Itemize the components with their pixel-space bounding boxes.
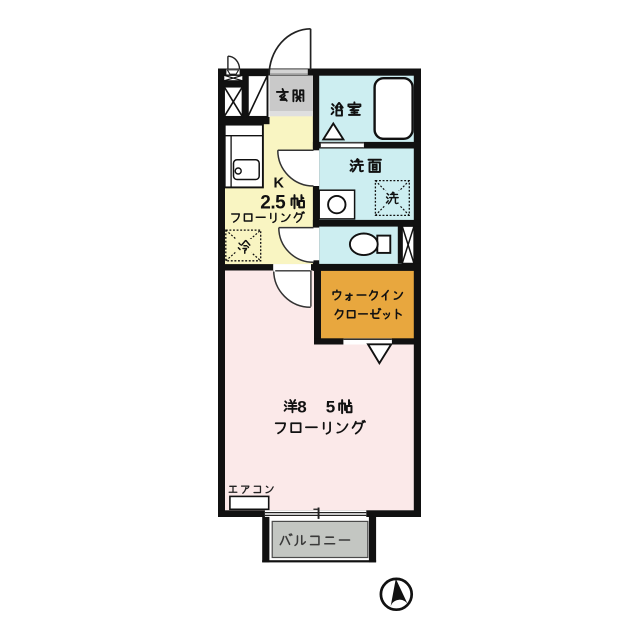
svg-text:K: K xyxy=(274,175,285,191)
svg-text:2.5: 2.5 xyxy=(260,193,286,214)
svg-text:5: 5 xyxy=(326,397,335,416)
svg-text:8: 8 xyxy=(297,397,306,416)
